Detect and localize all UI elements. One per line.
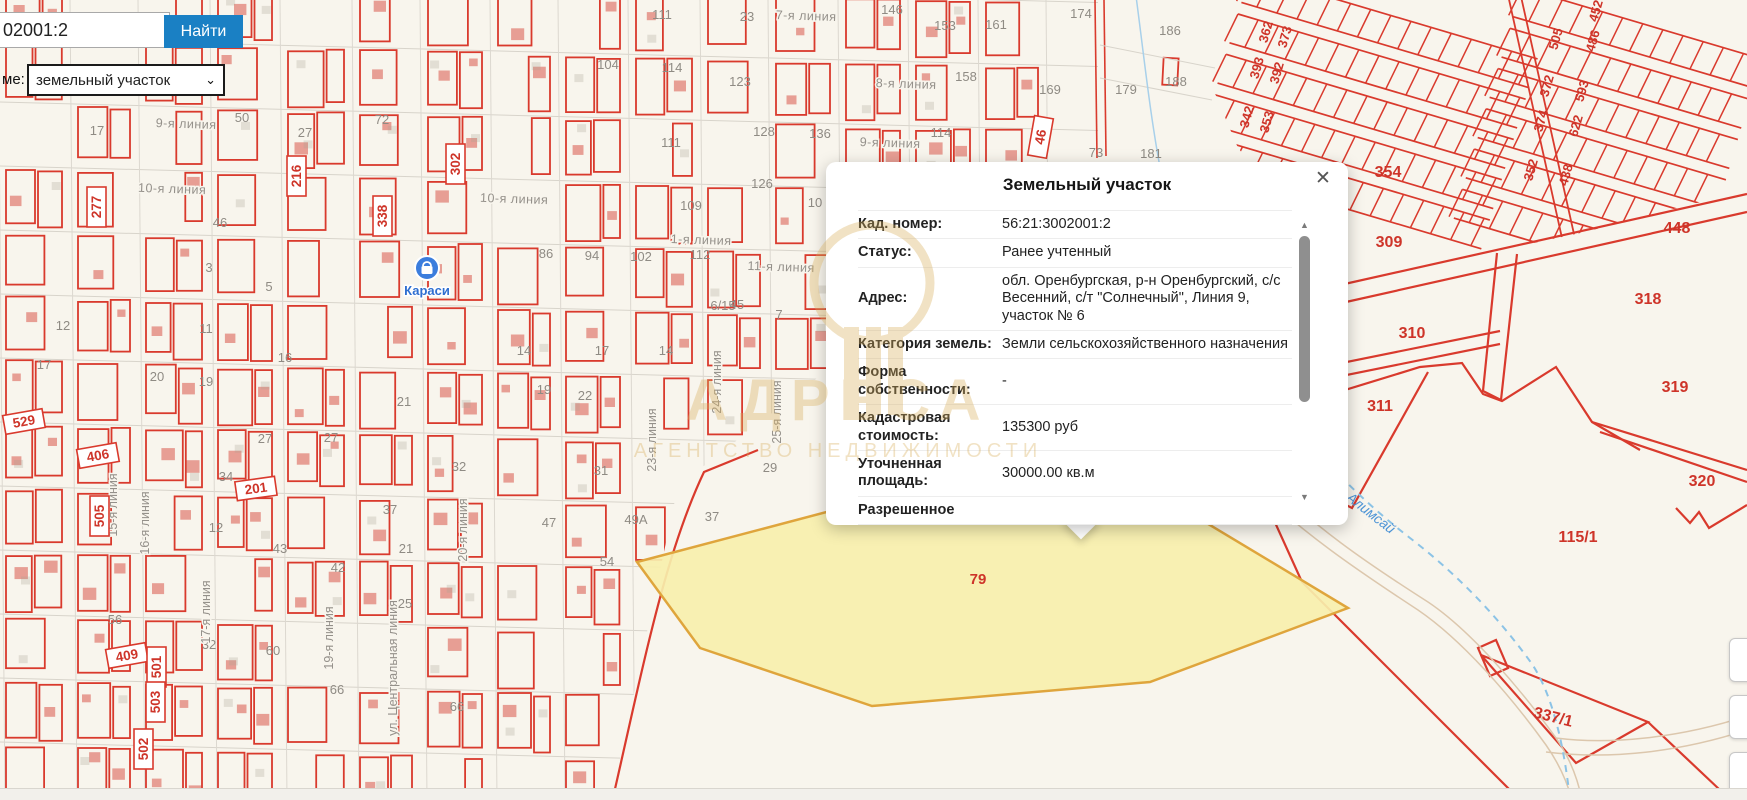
svg-text:46: 46 <box>213 215 227 230</box>
svg-text:23-я линия: 23-я линия <box>645 408 659 471</box>
svg-text:309: 309 <box>1376 234 1403 251</box>
svg-text:10-я линия: 10-я линия <box>138 181 207 197</box>
field-value: - <box>1002 373 1292 390</box>
svg-text:56: 56 <box>108 612 122 627</box>
svg-text:17-я линия: 17-я линия <box>199 580 213 643</box>
svg-text:ул. Центральная линия: ул. Центральная линия <box>386 600 400 736</box>
boxed-parcel-number: 529 <box>3 409 46 435</box>
svg-text:21: 21 <box>399 541 413 556</box>
svg-text:216: 216 <box>289 164 304 187</box>
svg-text:320: 320 <box>1689 473 1716 490</box>
svg-text:128: 128 <box>753 124 775 139</box>
svg-text:115/1: 115/1 <box>1558 529 1597 546</box>
svg-text:114: 114 <box>662 60 683 75</box>
boxed-parcel-number: 501 <box>147 647 166 687</box>
svg-text:86: 86 <box>539 246 553 261</box>
cadastral-map-viewer: 1112314615316117410411412315816912813611… <box>0 0 1747 800</box>
svg-text:47: 47 <box>542 515 556 530</box>
svg-text:181: 181 <box>1140 146 1162 161</box>
svg-text:111: 111 <box>661 135 681 150</box>
svg-text:37: 37 <box>705 509 719 524</box>
svg-text:22: 22 <box>578 388 592 403</box>
field-value: Земли сельскохозяйственного назначения <box>1002 336 1292 353</box>
svg-text:114: 114 <box>931 125 952 140</box>
svg-text:174: 174 <box>1070 6 1092 21</box>
svg-text:94: 94 <box>585 248 599 263</box>
svg-text:186: 186 <box>1159 23 1181 38</box>
svg-text:66: 66 <box>450 699 464 714</box>
svg-text:452: 452 <box>1585 0 1605 23</box>
field-value: 135300 руб <box>1002 419 1292 436</box>
svg-text:12: 12 <box>56 318 70 333</box>
svg-text:112: 112 <box>690 247 711 262</box>
field-value: Ранее учтенный <box>1002 244 1292 261</box>
place-marker-label: Караси <box>404 283 450 298</box>
svg-text:102: 102 <box>630 249 652 264</box>
boxed-parcel-number: 502 <box>134 729 153 769</box>
svg-text:337/1: 337/1 <box>1532 705 1575 731</box>
parcel-info-popup: Земельный участок ✕ Кад. номер:56:21:300… <box>826 162 1348 525</box>
popup-row: Кад. номер:56:21:3002001:2 <box>858 211 1292 239</box>
popup-row: Статус:Ранее учтенный <box>858 239 1292 267</box>
svg-text:32: 32 <box>452 459 466 474</box>
place-marker[interactable]: Караси <box>404 256 450 298</box>
svg-text:7-я линия: 7-я линия <box>776 8 837 24</box>
svg-text:11: 11 <box>199 321 213 336</box>
svg-text:20: 20 <box>150 369 164 384</box>
svg-text:17: 17 <box>595 343 609 358</box>
boxed-parcel-number: 277 <box>87 187 106 227</box>
svg-text:505: 505 <box>92 504 107 527</box>
svg-text:354: 354 <box>1375 164 1402 181</box>
svg-text:136: 136 <box>809 126 831 141</box>
svg-text:319: 319 <box>1662 379 1689 396</box>
svg-text:310: 310 <box>1399 325 1426 342</box>
svg-text:24-я линия: 24-я линия <box>710 350 724 413</box>
field-label: Кадастровая стоимость: <box>858 410 1002 445</box>
popup-row: Форма собственности:- <box>858 359 1292 405</box>
svg-text:1-я линия: 1-я линия <box>671 232 732 248</box>
svg-text:46: 46 <box>1032 128 1049 146</box>
svg-text:201: 201 <box>244 479 269 497</box>
close-icon[interactable]: ✕ <box>1312 168 1334 190</box>
svg-text:10-я линия: 10-я линия <box>480 191 549 207</box>
field-label: Разрешенное <box>858 502 1002 519</box>
svg-text:27: 27 <box>258 431 272 446</box>
svg-text:153: 153 <box>934 18 956 33</box>
svg-text:111: 111 <box>652 7 672 22</box>
svg-text:79: 79 <box>970 571 987 588</box>
popup-rows: Кад. номер:56:21:3002001:2Статус:Ранее у… <box>858 210 1292 525</box>
svg-text:7: 7 <box>775 307 782 322</box>
svg-text:19: 19 <box>537 382 551 397</box>
scroll-down-icon[interactable]: ▼ <box>1297 492 1312 504</box>
svg-text:66: 66 <box>330 682 344 697</box>
field-label: Адрес: <box>858 290 1002 307</box>
search-input[interactable] <box>0 12 170 48</box>
svg-text:54: 54 <box>600 554 614 569</box>
popup-row: Категория земель:Земли сельскохозяйствен… <box>858 331 1292 359</box>
svg-text:353: 353 <box>1256 109 1276 134</box>
svg-text:392: 392 <box>1266 60 1286 85</box>
popup-row: Адрес:обл. Оренбургская, р-н Оренбургски… <box>858 268 1292 331</box>
svg-text:486: 486 <box>1582 28 1602 53</box>
svg-text:362: 362 <box>1255 19 1275 44</box>
svg-text:158: 158 <box>955 69 977 84</box>
svg-text:34: 34 <box>219 469 233 484</box>
svg-text:179: 179 <box>1115 82 1137 97</box>
svg-text:393: 393 <box>1246 55 1266 80</box>
field-label: Уточненная площадь: <box>858 456 1002 491</box>
popup-title: Земельный участок <box>826 162 1348 195</box>
svg-text:302: 302 <box>448 153 463 176</box>
svg-text:502: 502 <box>136 738 151 761</box>
svg-text:43: 43 <box>273 541 287 556</box>
popup-row: Уточненная площадь:30000.00 кв.м <box>858 451 1292 497</box>
svg-text:21: 21 <box>397 394 411 409</box>
svg-text:104: 104 <box>597 57 619 72</box>
svg-text:19-я линия: 19-я линия <box>322 606 336 669</box>
map-tool-button[interactable] <box>1729 695 1747 739</box>
svg-text:72: 72 <box>375 112 389 127</box>
boxed-parcel-number: 406 <box>77 443 120 469</box>
svg-text:448: 448 <box>1664 220 1691 237</box>
field-label: Кад. номер: <box>858 216 1002 233</box>
svg-text:123: 123 <box>729 74 751 89</box>
boxed-parcel-number: 503 <box>146 682 165 722</box>
boxed-parcel-number: 46 <box>1028 116 1054 159</box>
svg-text:318: 318 <box>1635 291 1662 308</box>
object-type-value: земельный участок <box>36 72 170 89</box>
boxed-parcel-number: 338 <box>373 196 392 236</box>
svg-text:25-я линия: 25-я линия <box>770 380 784 443</box>
svg-text:161: 161 <box>985 17 1007 32</box>
svg-text:622: 622 <box>1565 113 1585 138</box>
boxed-parcel-number: 302 <box>446 144 465 184</box>
field-label: Категория земель: <box>858 336 1002 353</box>
svg-text:169: 169 <box>1039 82 1061 97</box>
svg-text:126: 126 <box>751 176 773 191</box>
field-value: обл. Оренбургская, р-н Оренбургский, с/с… <box>1002 273 1292 325</box>
chevron-down-icon: ⌄ <box>205 72 216 88</box>
svg-text:50: 50 <box>235 110 249 125</box>
svg-text:10: 10 <box>808 195 822 210</box>
popup-scrollbar[interactable]: ▲ ▼ <box>1297 220 1312 510</box>
svg-text:49А: 49А <box>624 512 647 527</box>
svg-text:593: 593 <box>1571 78 1591 103</box>
popup-row: Кадастровая стоимость:135300 руб <box>858 405 1292 451</box>
svg-text:9-я линия: 9-я линия <box>860 135 921 151</box>
svg-text:338: 338 <box>375 204 390 227</box>
field-value: 30000.00 кв.м <box>1002 465 1292 482</box>
svg-text:311: 311 <box>1367 398 1393 415</box>
svg-text:14: 14 <box>517 343 531 358</box>
svg-text:16-я линия: 16-я линия <box>138 491 152 554</box>
map-tool-button[interactable] <box>1729 638 1747 682</box>
field-label: Форма собственности: <box>858 364 1002 399</box>
svg-text:20-я линия: 20-я линия <box>456 498 470 561</box>
field-value: 56:21:3002001:2 <box>1002 216 1292 233</box>
svg-text:14: 14 <box>659 343 673 358</box>
popup-row: Разрешенное <box>858 497 1292 525</box>
svg-text:73: 73 <box>1089 145 1103 160</box>
svg-text:505: 505 <box>1545 26 1565 51</box>
svg-text:31: 31 <box>594 463 608 478</box>
boxed-parcel-number: 201 <box>235 476 277 500</box>
boxed-parcel-number: 505 <box>90 496 109 536</box>
svg-text:12: 12 <box>209 520 223 535</box>
svg-text:27: 27 <box>298 125 312 140</box>
svg-text:17: 17 <box>37 357 51 372</box>
svg-text:501: 501 <box>149 655 164 678</box>
svg-text:23: 23 <box>740 9 754 24</box>
svg-text:109: 109 <box>680 198 702 213</box>
svg-text:37: 37 <box>383 502 397 517</box>
object-type-select[interactable]: земельный участок ⌄ <box>27 64 225 96</box>
svg-text:352: 352 <box>1520 157 1540 182</box>
svg-text:6/15: 6/15 <box>710 298 735 313</box>
svg-text:9-я линия: 9-я линия <box>156 116 217 132</box>
svg-text:17: 17 <box>90 123 104 138</box>
svg-text:5: 5 <box>265 279 272 294</box>
scroll-up-icon[interactable]: ▲ <box>1297 220 1312 232</box>
svg-text:16: 16 <box>278 350 292 365</box>
svg-text:19: 19 <box>199 374 213 389</box>
svg-text:29: 29 <box>763 460 777 475</box>
svg-text:3: 3 <box>205 260 212 275</box>
svg-text:11-я линия: 11-я линия <box>747 259 815 275</box>
svg-text:146: 146 <box>881 2 903 17</box>
horizontal-scrollbar[interactable] <box>0 788 1747 800</box>
svg-text:60: 60 <box>266 643 280 658</box>
scrollbar-thumb[interactable] <box>1299 236 1310 402</box>
svg-text:342: 342 <box>1236 104 1256 129</box>
filter-label: ме: <box>2 71 25 88</box>
search-button[interactable]: Найти <box>164 15 243 48</box>
svg-text:42: 42 <box>331 560 345 575</box>
svg-text:503: 503 <box>148 690 163 713</box>
field-label: Статус: <box>858 244 1002 261</box>
svg-text:27: 27 <box>324 430 338 445</box>
svg-text:8-я линия: 8-я линия <box>876 76 937 92</box>
svg-text:277: 277 <box>89 196 104 219</box>
boxed-parcel-number: 216 <box>287 156 306 196</box>
svg-text:188: 188 <box>1165 74 1187 89</box>
